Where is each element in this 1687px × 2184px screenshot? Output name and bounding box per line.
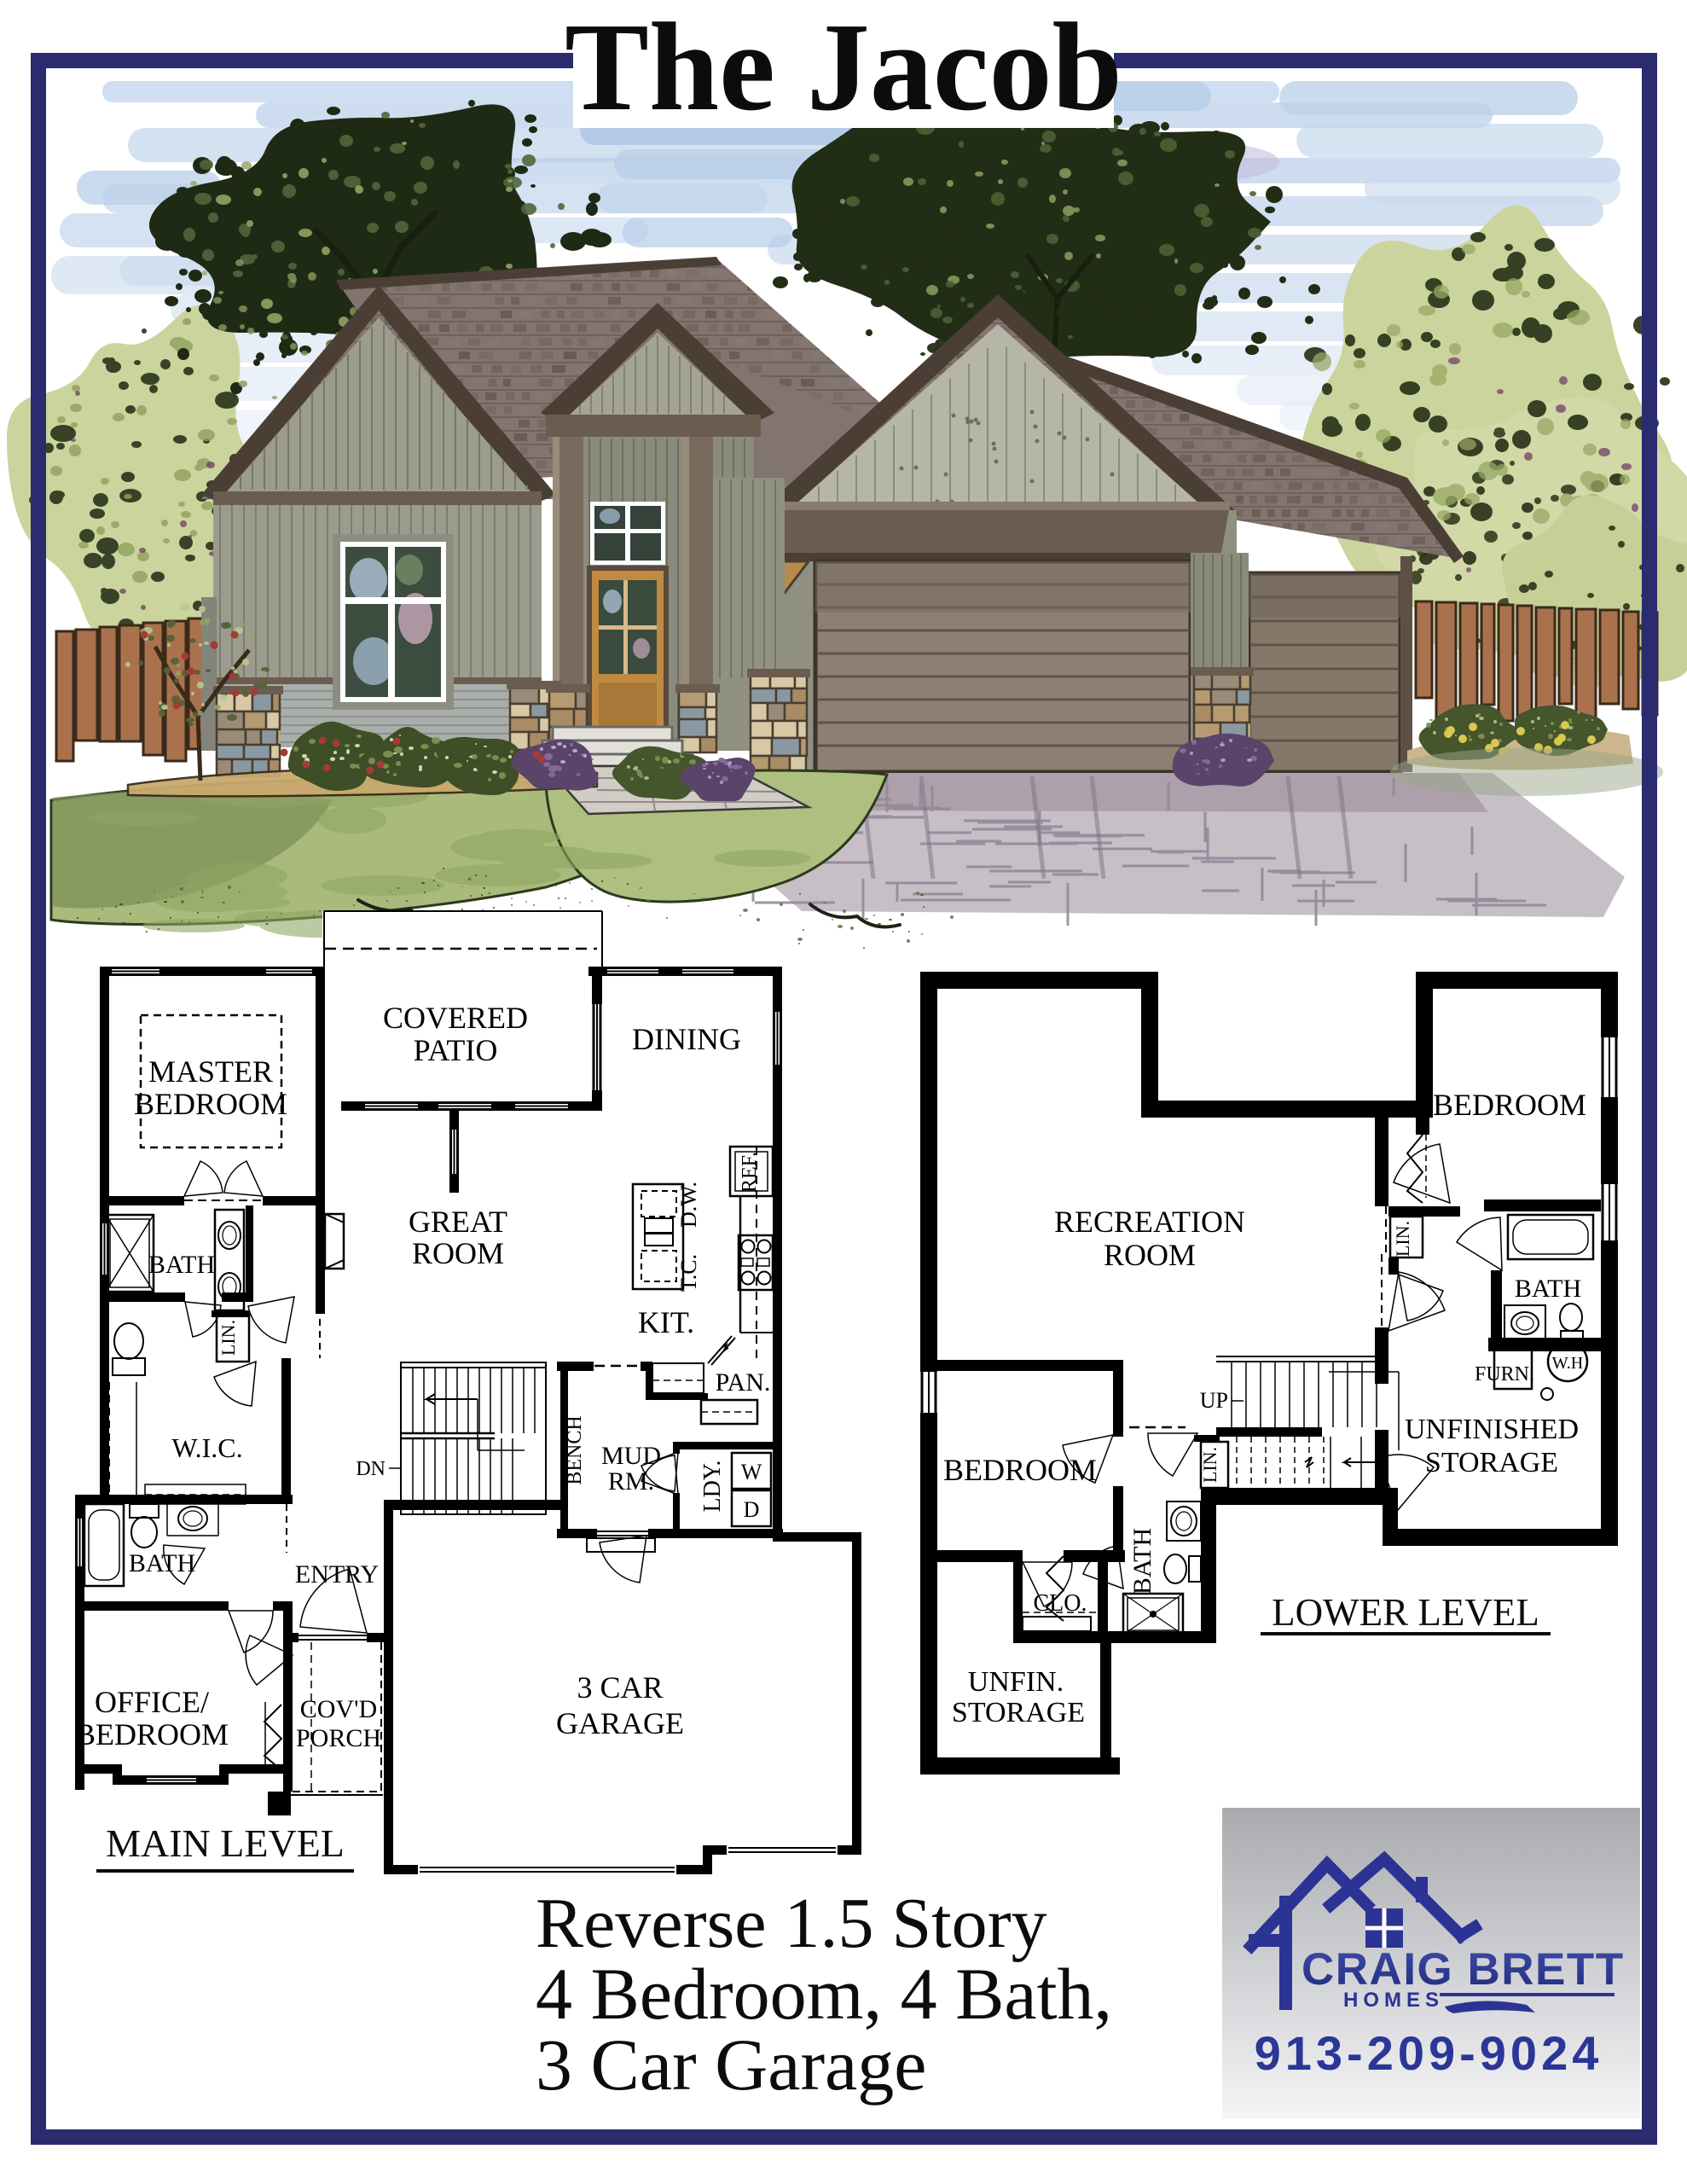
svg-text:W: W: [741, 1460, 762, 1484]
svg-text:PATIO: PATIO: [414, 1033, 498, 1067]
svg-text:UNFINISHED: UNFINISHED: [1405, 1414, 1579, 1445]
svg-text:BEDROOM: BEDROOM: [75, 1717, 229, 1751]
svg-text:UNFIN.: UNFIN.: [968, 1666, 1064, 1698]
svg-text:913-209-9024: 913-209-9024: [1255, 2026, 1603, 2080]
svg-text:DN: DN: [356, 1458, 386, 1480]
svg-text:BATH: BATH: [1515, 1275, 1581, 1303]
svg-text:D: D: [744, 1497, 760, 1522]
svg-text:ROOM: ROOM: [1104, 1238, 1196, 1272]
svg-text:T.C.: T.C.: [676, 1254, 701, 1292]
svg-text:MAIN LEVEL: MAIN LEVEL: [106, 1821, 345, 1865]
svg-text:COV'D: COV'D: [300, 1695, 377, 1723]
svg-text:The Jacob: The Jacob: [565, 0, 1122, 137]
svg-text:BATH: BATH: [148, 1251, 215, 1279]
svg-text:BATH: BATH: [129, 1549, 195, 1577]
svg-text:LIN.: LIN.: [217, 1320, 239, 1356]
svg-text:W.I.C.: W.I.C.: [171, 1432, 242, 1463]
svg-text:OFFICE/: OFFICE/: [95, 1685, 209, 1719]
svg-text:RECREATION: RECREATION: [1054, 1205, 1245, 1239]
svg-text:HOMES: HOMES: [1343, 1989, 1444, 2012]
svg-text:PAN.: PAN.: [716, 1368, 771, 1397]
svg-text:Reverse 1.5 Story: Reverse 1.5 Story: [536, 1884, 1047, 1963]
svg-text:FURN.: FURN.: [1475, 1363, 1534, 1385]
svg-text:BEDROOM: BEDROOM: [1433, 1088, 1586, 1122]
svg-text:COVERED: COVERED: [383, 1001, 528, 1035]
svg-text:KIT.: KIT.: [638, 1305, 694, 1339]
svg-text:LIN.: LIN.: [1199, 1447, 1220, 1483]
svg-text:UP: UP: [1200, 1388, 1228, 1413]
svg-text:STORAGE: STORAGE: [1425, 1447, 1558, 1478]
svg-text:LOWER LEVEL: LOWER LEVEL: [1272, 1591, 1539, 1634]
svg-text:PORCH: PORCH: [296, 1724, 381, 1752]
svg-text:BEDROOM: BEDROOM: [943, 1453, 1097, 1487]
svg-text:BATH: BATH: [1128, 1528, 1157, 1594]
svg-text:BENCH: BENCH: [564, 1415, 586, 1484]
svg-text:D.W.: D.W.: [676, 1182, 701, 1228]
svg-text:3 CAR: 3 CAR: [577, 1670, 663, 1705]
svg-text:BEDROOM: BEDROOM: [134, 1087, 287, 1121]
svg-text:GREAT: GREAT: [409, 1205, 507, 1239]
svg-text:CRAIG BRETT: CRAIG BRETT: [1301, 1944, 1625, 1995]
svg-text:DINING: DINING: [632, 1022, 741, 1056]
svg-text:RM.: RM.: [608, 1467, 654, 1496]
svg-text:4 Bedroom, 4 Bath,: 4 Bedroom, 4 Bath,: [536, 1953, 1112, 2035]
svg-text:GARAGE: GARAGE: [556, 1706, 684, 1740]
svg-text:STORAGE: STORAGE: [952, 1697, 1085, 1728]
svg-text:ENTRY: ENTRY: [295, 1560, 379, 1589]
svg-text:ROOM: ROOM: [412, 1236, 504, 1270]
svg-text:LIN.: LIN.: [1392, 1221, 1413, 1257]
svg-text:3 Car Garage: 3 Car Garage: [536, 2024, 926, 2106]
svg-text:LDY.: LDY.: [699, 1461, 726, 1513]
svg-text:REF.: REF.: [739, 1152, 761, 1193]
svg-text:MASTER: MASTER: [148, 1054, 273, 1089]
svg-text:W.H: W.H: [1552, 1354, 1583, 1373]
